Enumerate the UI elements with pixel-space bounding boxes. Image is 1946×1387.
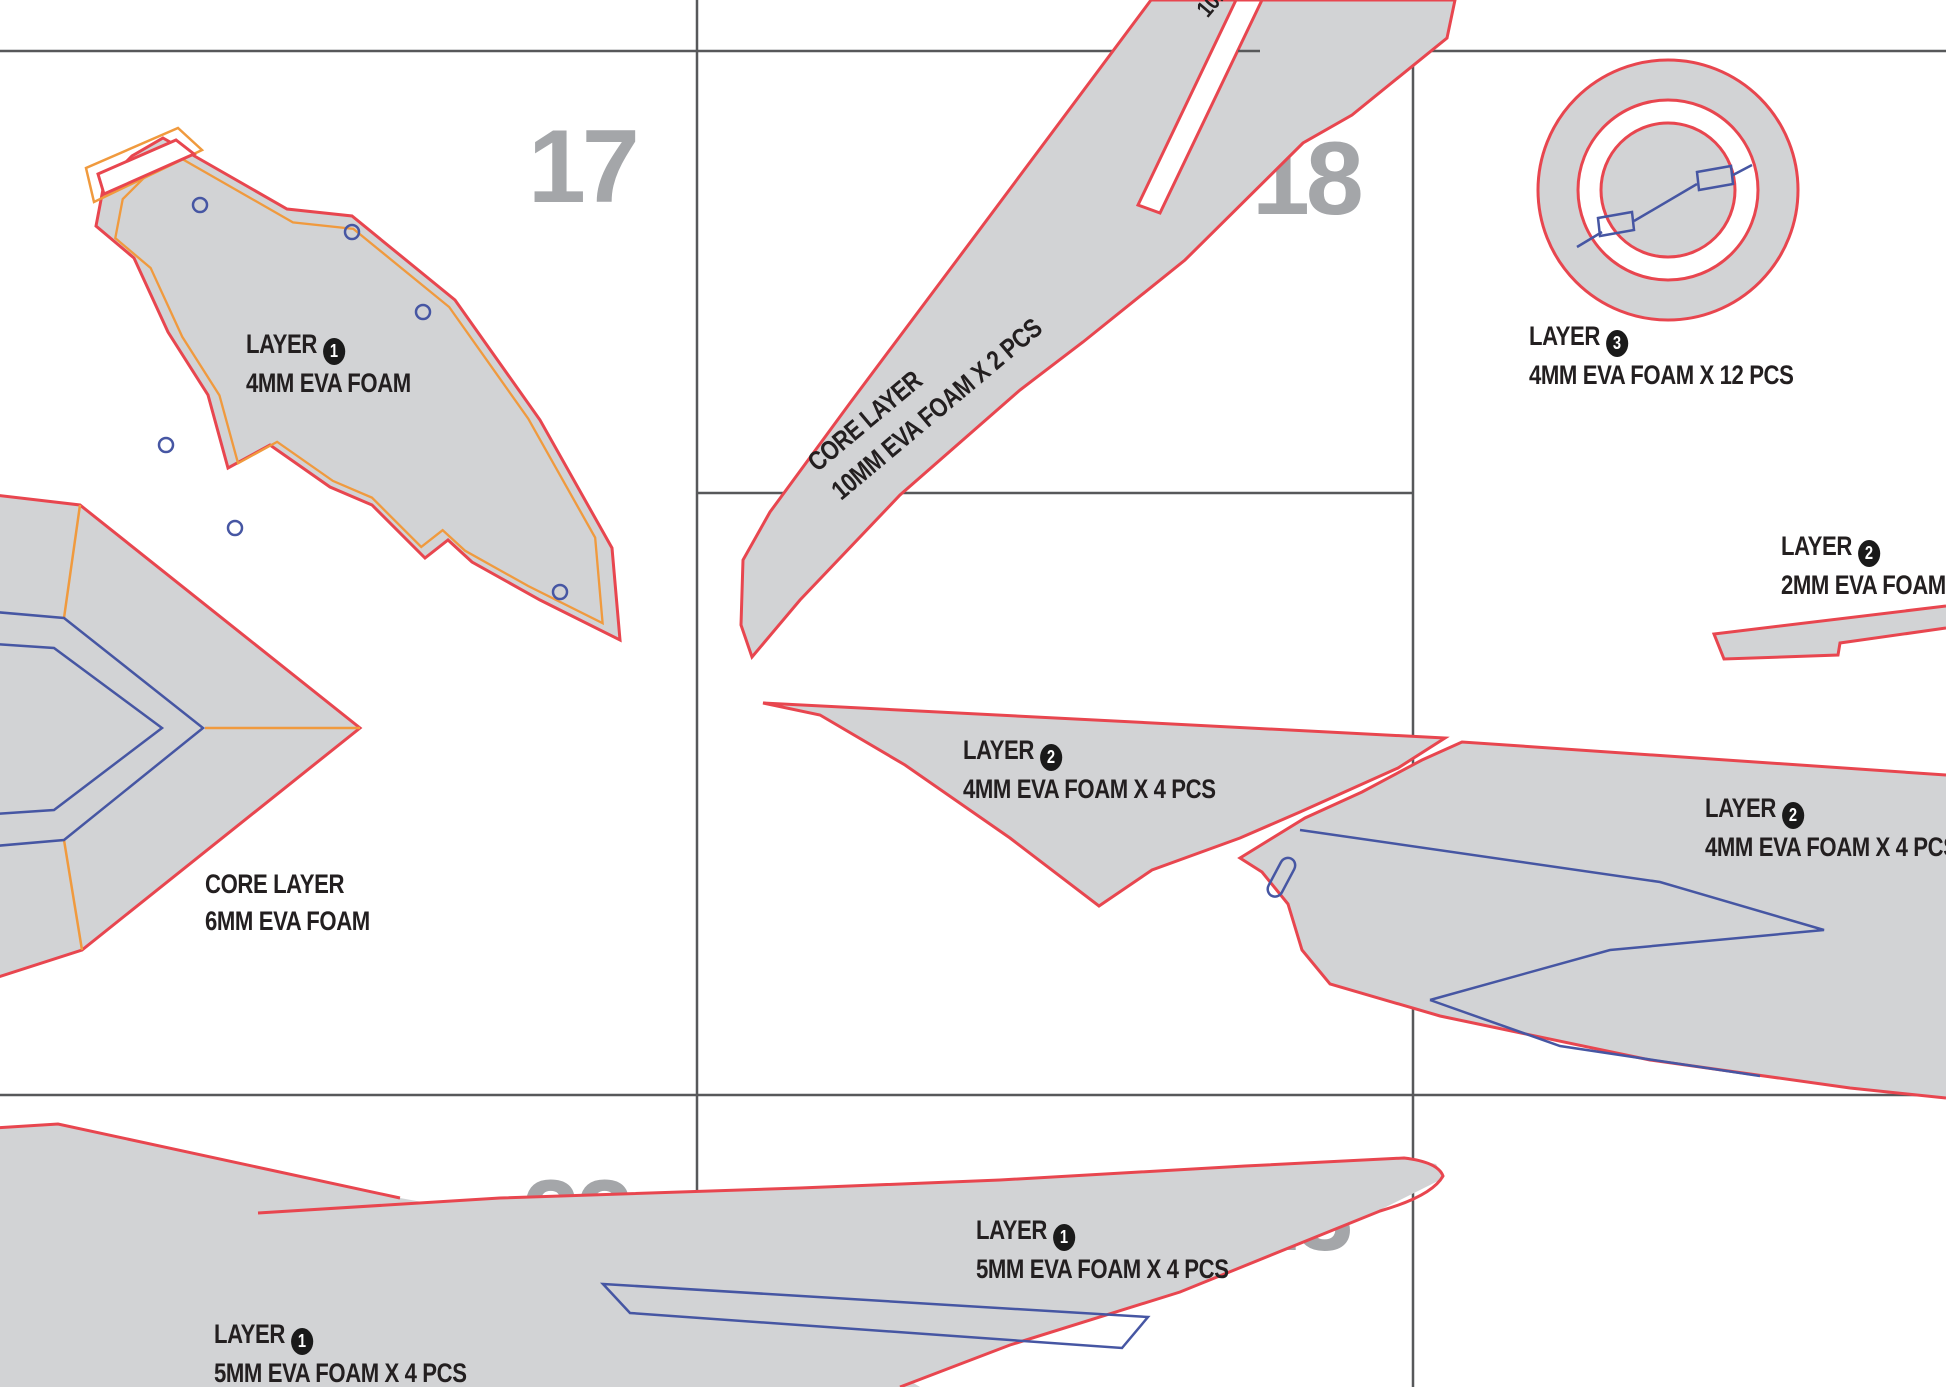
piece-core-10mm-outline	[741, 0, 1455, 657]
label-core-6mm-line2: 6MM EVA FOAM	[205, 903, 370, 940]
label-layer1-top-line1: LAYER1	[246, 326, 411, 365]
piece-layer2-2mm-strip	[1714, 606, 1946, 659]
layer-number-badge: 2	[1782, 802, 1804, 829]
page-number-17: 17	[528, 109, 636, 225]
layer-number-badge: 1	[1053, 1224, 1075, 1251]
layer-number-badge: 3	[1606, 330, 1628, 357]
label-bottom-mid: LAYER1 5MM EVA FOAM X 4 PCS	[976, 1212, 1284, 1288]
layer-number-badge: 1	[323, 338, 345, 365]
label-mid-4mm-line2: 4MM EVA FOAM X 4 PCS	[963, 771, 1216, 808]
label-ring-line2: 4MM EVA FOAM X 12 PCS	[1529, 357, 1794, 394]
label-mid-4mm-line1: LAYER2	[963, 732, 1216, 771]
label-right-4mm-line1: LAYER2	[1705, 790, 1946, 829]
label-bottom-left: LAYER1 5MM EVA FOAM X 4 PCS	[214, 1316, 522, 1387]
label-bottom-mid-line2: 5MM EVA FOAM X 4 PCS	[976, 1251, 1229, 1288]
label-layer1-top-line2: 4MM EVA FOAM	[246, 365, 411, 402]
label-bottom-left-line2: 5MM EVA FOAM X 4 PCS	[214, 1355, 467, 1387]
piece-core-10mm-blade	[741, 0, 1455, 657]
label-strip-2mm-line1: LAYER2	[1781, 528, 1946, 567]
layer-number-badge: 2	[1858, 540, 1880, 567]
ring-inner-disc	[1601, 123, 1735, 257]
label-bottom-left-line1: LAYER1	[214, 1316, 467, 1355]
layer-number-badge: 1	[291, 1328, 313, 1355]
label-core-6mm: CORE LAYER 6MM EVA FOAM	[205, 866, 406, 941]
label-mid-4mm: LAYER2 4MM EVA FOAM X 4 PCS	[963, 732, 1271, 808]
layer-number-badge: 2	[1040, 744, 1062, 771]
label-bottom-mid-line1: LAYER1	[976, 1212, 1229, 1251]
pattern-vector-canvas: 17 18 22 23	[0, 0, 1946, 1387]
label-strip-2mm: LAYER2 2MM EVA FOAM X	[1781, 528, 1946, 604]
piece-layer3-ring	[1538, 60, 1798, 320]
label-layer1-top: LAYER1 4MM EVA FOAM	[246, 326, 447, 402]
label-right-4mm-line2: 4MM EVA FOAM X 4 PCS	[1705, 829, 1946, 866]
label-core-6mm-line1: CORE LAYER	[205, 866, 370, 903]
label-ring-line1: LAYER3	[1529, 318, 1794, 357]
label-strip-2mm-line2: 2MM EVA FOAM X	[1781, 567, 1946, 604]
pattern-sheet-page: 17 18 22 23	[0, 0, 1946, 1387]
label-ring: LAYER3 4MM EVA FOAM X 12 PCS	[1529, 318, 1852, 394]
label-right-4mm: LAYER2 4MM EVA FOAM X 4 PCS	[1705, 790, 1946, 866]
